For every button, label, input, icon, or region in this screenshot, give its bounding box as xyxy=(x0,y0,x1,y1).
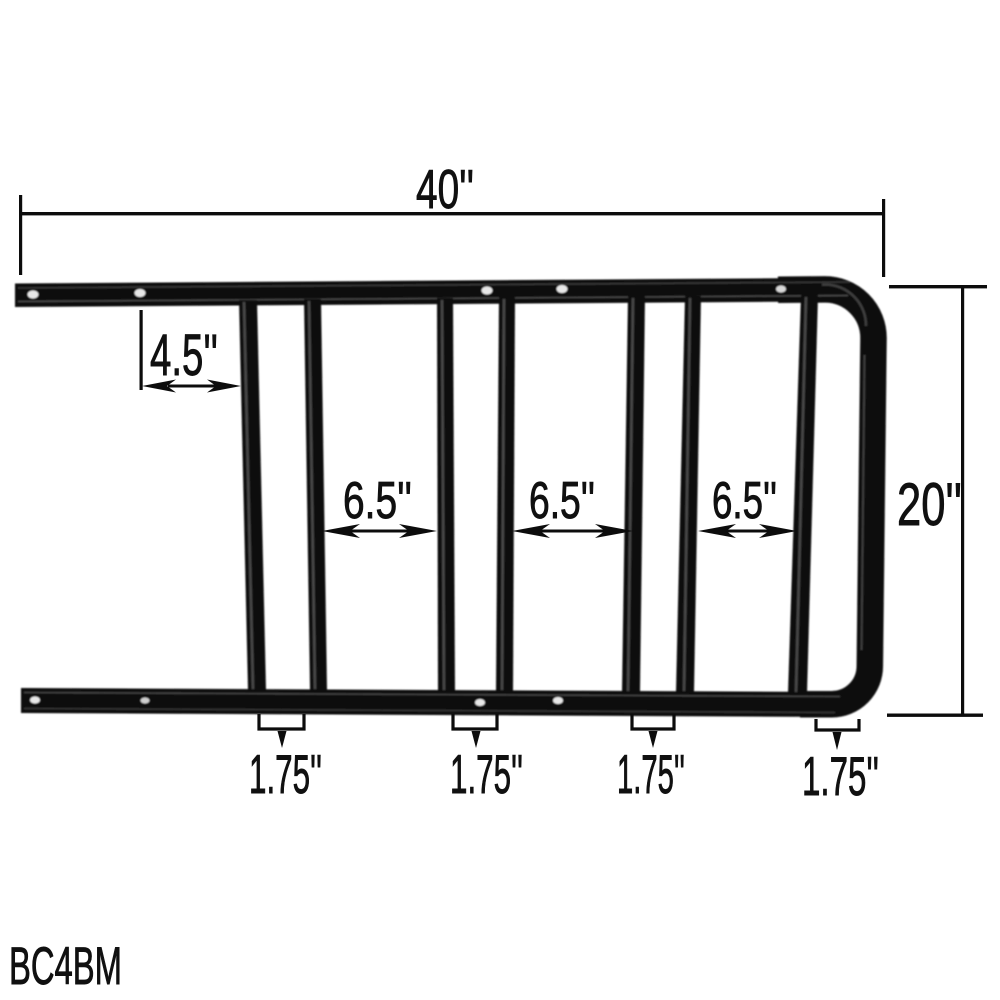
svg-text:1.75'': 1.75'' xyxy=(802,745,879,807)
svg-text:1.75'': 1.75'' xyxy=(617,743,685,805)
svg-text:40'': 40'' xyxy=(416,158,474,220)
svg-text:6.5'': 6.5'' xyxy=(712,472,777,530)
svg-text:20'': 20'' xyxy=(897,471,962,538)
svg-text:BC4BM: BC4BM xyxy=(9,937,122,996)
svg-text:1.75'': 1.75'' xyxy=(450,743,523,805)
svg-text:1.75'': 1.75'' xyxy=(249,743,322,805)
svg-text:6.5'': 6.5'' xyxy=(529,472,595,530)
svg-text:4.5'': 4.5'' xyxy=(150,323,218,388)
svg-text:6.5'': 6.5'' xyxy=(343,472,412,530)
